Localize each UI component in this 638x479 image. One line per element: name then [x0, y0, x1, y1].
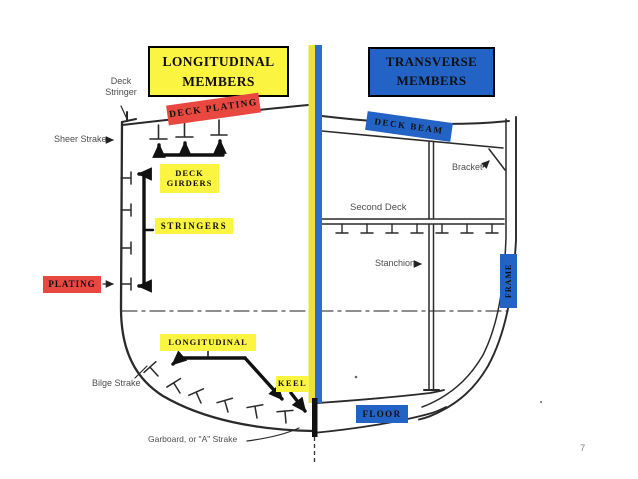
label-stringers: STRINGERS [155, 218, 233, 234]
label-keel: KEEL [276, 376, 309, 392]
bracket-label-arrow [483, 161, 489, 167]
label-deck-girders: DECK GIRDERS [160, 164, 219, 193]
label-longitudinal: LONGITUDINAL [160, 334, 256, 351]
stringers-bracket [139, 174, 153, 286]
slide-hull-members-diagram: LONGITUDINAL MEMBERS TRANSVERSE MEMBERS … [0, 0, 638, 479]
annotation-stanchion: Stanchion [375, 258, 415, 269]
bilge-longitudinal-frames [144, 362, 294, 424]
label-plating: PLATING [43, 276, 101, 293]
longitudinal-bracket [173, 351, 282, 399]
annotation-bracket: Bracket [452, 162, 483, 173]
annotation-sheer-strake: Sheer Strake [54, 134, 107, 145]
stanchion-drawing [424, 142, 439, 390]
label-frame: FRAME [500, 254, 517, 308]
deck-girders-pointer-arrows [156, 141, 223, 155]
title-longitudinal-members: LONGITUDINAL MEMBERS [148, 46, 289, 97]
slide-page-number: 7 [580, 443, 585, 454]
annotation-bilge-strake: Bilge Strake [92, 378, 141, 389]
centerline-strip-blue [315, 45, 322, 403]
second-deck-drawing [322, 219, 504, 233]
annotation-deck-stringer: Deck Stringer [100, 76, 142, 99]
annotation-second-deck: Second Deck [350, 202, 407, 214]
scan-specks [355, 376, 542, 403]
keel-pointer-arrow [291, 393, 305, 411]
beam-bracket-line [489, 149, 505, 170]
label-floor: FLOOR [356, 405, 408, 423]
annotation-garboard-strake: Garboard, or "A" Strake [148, 434, 237, 445]
keel-bar [312, 398, 318, 463]
hull-cross-section-drawing [0, 0, 638, 479]
deck-girders-drawing [150, 120, 227, 139]
centerline-strip-yellow [309, 45, 316, 403]
title-transverse-members: TRANSVERSE MEMBERS [368, 47, 495, 97]
